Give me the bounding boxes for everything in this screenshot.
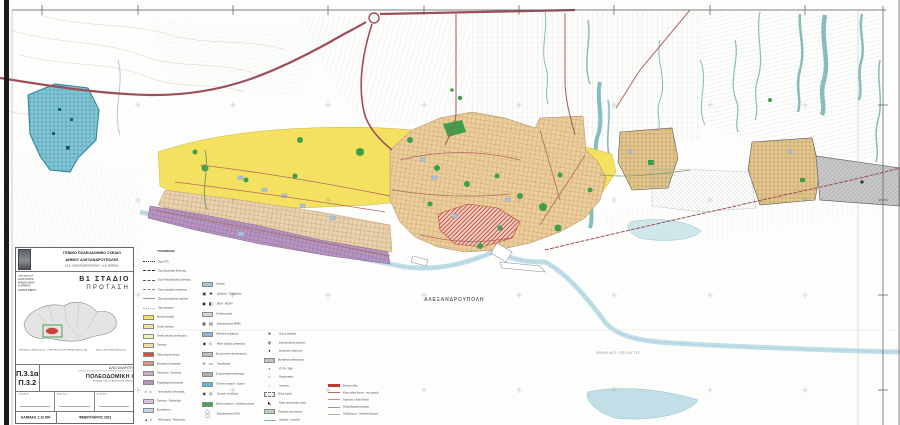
legend-entry-label: Αεροδρόμιο [217,363,230,366]
signature-cell: ΕΛΕΓΧΟΣ [55,392,94,411]
legend-entry-label: ΒΙΠΑ - ΒΙΟΠΑ [217,303,233,306]
legend-entry-label: Όριο Δημοτικής Ενότητας [158,270,186,273]
legend-symbol: ◼ ◧ [202,302,214,306]
legend-entry-label: Τουρισμός - Αναψυχή [157,372,181,375]
study-area-highlight [46,328,58,334]
legend-swatch [202,352,213,357]
legend-entry-label: Περιοχές προστασίας [278,410,302,413]
legend-entry-label: Κύριο οδικό δίκτυο - νέα χάραξη [343,392,379,395]
legend-symbol: ▦ ▤ [202,322,214,326]
legend-swatch [202,372,213,377]
map-scale: ΚΛΙΜΑΚΑ 1:10.000 [16,412,57,424]
legend-entry-label: Πολεοδομικό κέντρο [157,353,180,356]
legend-entry-label: ΧΥΤΑ - ΣΜΑ [279,367,293,370]
legend-entry-label: Στρατιωτικές εγκαταστάσεις [216,353,247,356]
legend-swatch [202,312,213,317]
title-block: ΓΕΝΙΚΟ ΠΟΛΕΟΔΟΜΙΚΟ ΣΧΕΔΙΟ ΔΗΜΟΥ ΑΛΕΞΑΝΔΡ… [15,247,134,424]
legend-column: Εγνατία οδόςΚύριο οδικό δίκτυο - νέα χάρ… [328,382,428,418]
signature-cell: ΕΓΚΡΙΣΗ [95,392,133,411]
legend-entry-label: Όριο ΓΠΣ [158,260,169,263]
legend-entry-label: Σιδηροδρομική γραμμή [343,406,369,409]
scale-date-row: ΚΛΙΜΑΚΑ 1:10.000 ΦΕΒΡΟΥΑΡΙΟΣ 2021 [16,412,133,424]
legend-panel: ΥΠΟΜΝΗΜΑ Όριο ΓΠΣΌριο Δημοτικής Ενότητας… [143,250,395,425]
legend-entry-label: Δεξαμενές ύδρευσης [279,350,302,353]
legend-entry-label: Βιολογικός καθαρισμός [278,359,304,362]
legend-entry-label: Νεκροταφείο [279,376,293,379]
legend-entry: ◐ΧΥΤΑ - ΣΜΑ [264,364,343,373]
legend-entry-label: Γενική κατοικία (επέκταση) [157,335,187,338]
legend-entry: Κύριο οδικό δίκτυο - νέα χάραξη [328,389,428,396]
legend-entry: Χονδρεμπόριο [202,309,306,319]
legend-entry-label: Εγκαταστάσεις ΟΚΩ [217,413,240,416]
legend-swatch [143,343,154,348]
legend-entry-label: Γενική κατοικία [157,325,174,328]
map-canvas: ΑΛΕΞΑΝΔΡΟΥΠΟΛΗ ΘΡΑΚΙΚΟ ΠΕΛΑΓΟΣ [0,0,900,425]
legend-entry-label: Κοινωφελείς λειτουργίες [158,391,185,394]
location-inset-map [19,294,119,348]
legend-symbol: ◆ ◇ [202,342,214,346]
legend-swatch [143,380,154,385]
legend-line-sample [143,289,155,290]
legend-entry-label: Εκπαίδευση [157,409,171,412]
legend-entry-label: Πρόνοια - Περίθαλψη [157,400,181,403]
legend-line-sample [328,407,340,408]
legend-entry: Πρωτεύον οδικό δίκτυο [328,396,428,403]
legend-entry-label: Οικισμοί [157,344,166,347]
title-block-header: ΓΕΝΙΚΟ ΠΟΛΕΟΔΟΜΙΚΟ ΣΧΕΔΙΟ ΔΗΜΟΥ ΑΛΕΞΑΝΔΡ… [16,248,133,272]
legend-entry-label: Όριο Πολεοδομικής Ενότητας [158,279,191,282]
legend-symbol: ▪ ⌂ [143,390,155,394]
legend-line-sample [143,308,155,309]
legend-line-sample [328,384,340,387]
legend-entry-label: Υδάτινα στοιχεία - ρέματα [216,383,245,386]
legend-swatch [202,332,213,337]
legend-swatch [264,409,275,414]
legend-entry-label: Εγνατία οδός [343,384,358,387]
legend-entry-label: Όριο εγκεκριμένου σχεδίου [158,298,188,301]
signature-row: ΣΥΝΤΑΞΗ ΕΛΕΓΧΟΣ ΕΓΚΡΙΣΗ [16,392,133,412]
legend-swatch [143,315,154,320]
region-text: ΠΕΡΙΦΕΡΕΙΑ ΑΝΑΤΟΛΙΚΗΣ ΜΑΚΕΔΟΝΙΑΣ & ΘΡΑΚΗ… [18,275,47,293]
legend-entry-label: Εγκαταστάσεις κεραιών [279,342,305,345]
legend-entry-label: Παραθεριστική κατοικία [157,381,183,384]
legend-entry-label: Πρωτεύον οδικό δίκτυο [343,399,369,402]
legend-entry-label: Αλιευτικό καταφύγιο [216,333,238,336]
legend-symbol: ▴ ▪ [143,418,155,422]
legend-entry-label: Αιγιαλός - παραλία [279,419,300,422]
legend-entry-label: Πεζόδρομος - ποδηλατόδρομος [343,413,378,416]
legend-entry: Εγνατία οδός [328,382,428,389]
legend-symbol: ✈ ▭ [202,362,214,366]
legend-swatch [202,282,213,287]
legend-symbol: ◯ ◯ [202,410,214,418]
legend-entry-label: Διοίκηση - Περίθαλψη [217,293,241,296]
sheet-numbers: Π.3.1α Π.3.2 [16,365,40,391]
legend-line-sample [328,414,340,415]
legend-entry-label: Χώροι λατρείας [279,333,296,336]
legend-entry: ○Νεκροταφείο [264,373,343,382]
legend-swatch [143,399,154,404]
legend-swatch [202,382,213,387]
legend-entry-label: Αστικό πράσινο - ελεύθεροι χώροι [216,403,254,406]
legend-swatch [143,324,154,329]
legend-line-sample [143,298,155,299]
plan-title-line3: (Δ.Ε. ΑΛΕΞΑΝΔΡΟΥΠΟΛΗΣ - Δ.Ε. ΦΕΡΩΝ) [65,265,118,268]
legend-title: ΥΠΟΜΝΗΜΑ [157,250,175,253]
legend-entry: ◼ ◧ΒΙΠΑ - ΒΙΟΠΑ [202,299,306,309]
legend-entry-label: Όριο οικισμού [158,307,174,310]
sheet-number-row: Π.3.1α Π.3.2 ΑΛΕΞΑΝΔΡΟΥΠΟΛΗ ΠΟΛΕΟΔΟΜΙΚΗ … [16,365,133,392]
legend-entry: Σιδηροδρομική γραμμή [328,404,428,411]
legend-entry: ⊕Χώροι λατρείας [264,330,343,339]
municipality-emblem [18,249,31,270]
legend-entry-label: Εγκαταστάσεις ΜΜΜ [217,323,240,326]
legend-swatch [264,358,275,363]
legend-entry: Πεζόδρομος - ποδηλατόδρομος [328,411,428,418]
legend-entry-label: Αμιγής κατοικία [157,316,174,319]
plan-title-line1: ΓΕΝΙΚΟ ΠΟΛΕΟΔΟΜΙΚΟ ΣΧΕΔΙΟ [55,251,128,255]
legend-symbol: ◣ [264,401,276,405]
legend-entry: ▦ ▤Εγκαταστάσεις ΜΜΜ [202,319,306,329]
legend-entry-label: Κεντρικές λειτουργίες [157,363,181,366]
sheet-city: ΑΛΕΞΑΝΔΡΟΥΠΟΛΗ [78,367,133,371]
legend-entry-label: Όριο περιοχής επέκτασης [158,288,187,291]
legend-swatch [202,402,213,407]
legend-line-sample [143,261,155,262]
note-right: ΘΕΣΗ ΠΕΡΙΟΧΗΣ ΜΕΛΕΤΗΣ [96,349,126,352]
note-left: ΑΝΑΔΟΧΟΙ ΜΕΛΕΤΗΤΕΣ - ΣΥΜΠΡΑΤΤΟΝΤΑ ΓΡΑΦΕΙ… [19,349,87,352]
signature-cell: ΣΥΝΤΑΞΗ [16,392,55,411]
legend-entry-label: Χονδρεμπόριο [216,313,232,316]
legend-symbol: ○ [264,375,276,379]
legend-line-sample [143,280,155,281]
legend-entry: Λιμένας [202,279,306,289]
legend-entry: ●Δεξαμενές ύδρευσης [264,347,343,356]
legend-entry-label: Λατομείο [279,385,289,388]
legend-swatch [143,371,154,376]
legend-line-sample [143,270,155,271]
legend-entry: ▣ ✚Διοίκηση - Περίθαλψη [202,289,306,299]
legend-entry-label: Έργα προστασίας ακτής [279,402,306,405]
legend-line-sample [328,392,340,393]
legend-swatch [143,334,154,339]
legend-entry-label: Μέσα μαζικής μεταφοράς [217,343,245,346]
legend-symbol: ◉ ◎ [202,392,214,396]
legend-symbol: ◌ [264,384,276,388]
legend-entry-label: Αθλητισμός - Πολιτισμός [158,418,185,421]
legend-symbol: ◍ [264,341,276,345]
legend-symbol: ▣ ✚ [202,292,214,296]
legend-entry-label: Σωφρονιστικό κατάστημα [216,373,244,376]
sheet-subtitle: ΧΡΗΣΕΙΣ ΓΗΣ, ΠΥΚΝΟΤΗΤΕΣ, ΚΑΤΗΓΟΡΙΕΣ ΠΑΡΕ… [92,380,133,382]
stage-label: Β1 ΣΤΑΔΙΟ ΠΡΟΤΑΣΗ [79,276,130,291]
legend-line-sample [264,420,276,421]
legend-entry: Βιολογικός καθαρισμός [264,356,343,365]
legend-entry-label: Λιμένας [216,283,225,286]
sea-label: ΘΡΑΚΙΚΟ ΠΕΛΑΓΟΣ [596,351,641,355]
city-label: ΑΛΕΞΑΝΔΡΟΥΠΟΛΗ [424,297,484,303]
legend-entry: Όριο Δημοτικής Ενότητας [143,266,235,275]
legend-symbol: ◐ [264,367,276,371]
legend-swatch [143,408,154,413]
legend-symbol: ● [264,349,276,353]
legend-entry: ◍Εγκαταστάσεις κεραιών [264,339,343,348]
legend-swatch [143,352,154,357]
legend-entry: Όριο ΓΠΣ [143,257,235,266]
legend-entry-label: Ζώνη λιμένα [278,393,292,396]
title-block-main: ΠΕΡΙΦΕΡΕΙΑ ΑΝΑΤΟΛΙΚΗΣ ΜΑΚΕΔΟΝΙΑΣ & ΘΡΑΚΗ… [16,272,133,365]
legend-line-sample [328,399,340,400]
legend-entry-label: Τεχνικές υποδομές [217,393,238,396]
legend-swatch [143,361,154,366]
scanned-map-page: ΑΛΕΞΑΝΔΡΟΥΠΟΛΗ ΘΡΑΚΙΚΟ ΠΕΛΑΓΟΣ ΥΠΟΜΝΗΜΑ … [0,0,900,425]
legend-swatch-dashed [264,392,275,397]
plan-title-line2: ΔΗΜΟΥ ΑΛΕΞΑΝΔΡΟΥΠΟΛΗΣ [55,258,128,262]
legend-symbol: ⊕ [264,332,276,336]
map-date: ΦΕΒΡΟΥΑΡΙΟΣ 2021 [57,412,133,424]
